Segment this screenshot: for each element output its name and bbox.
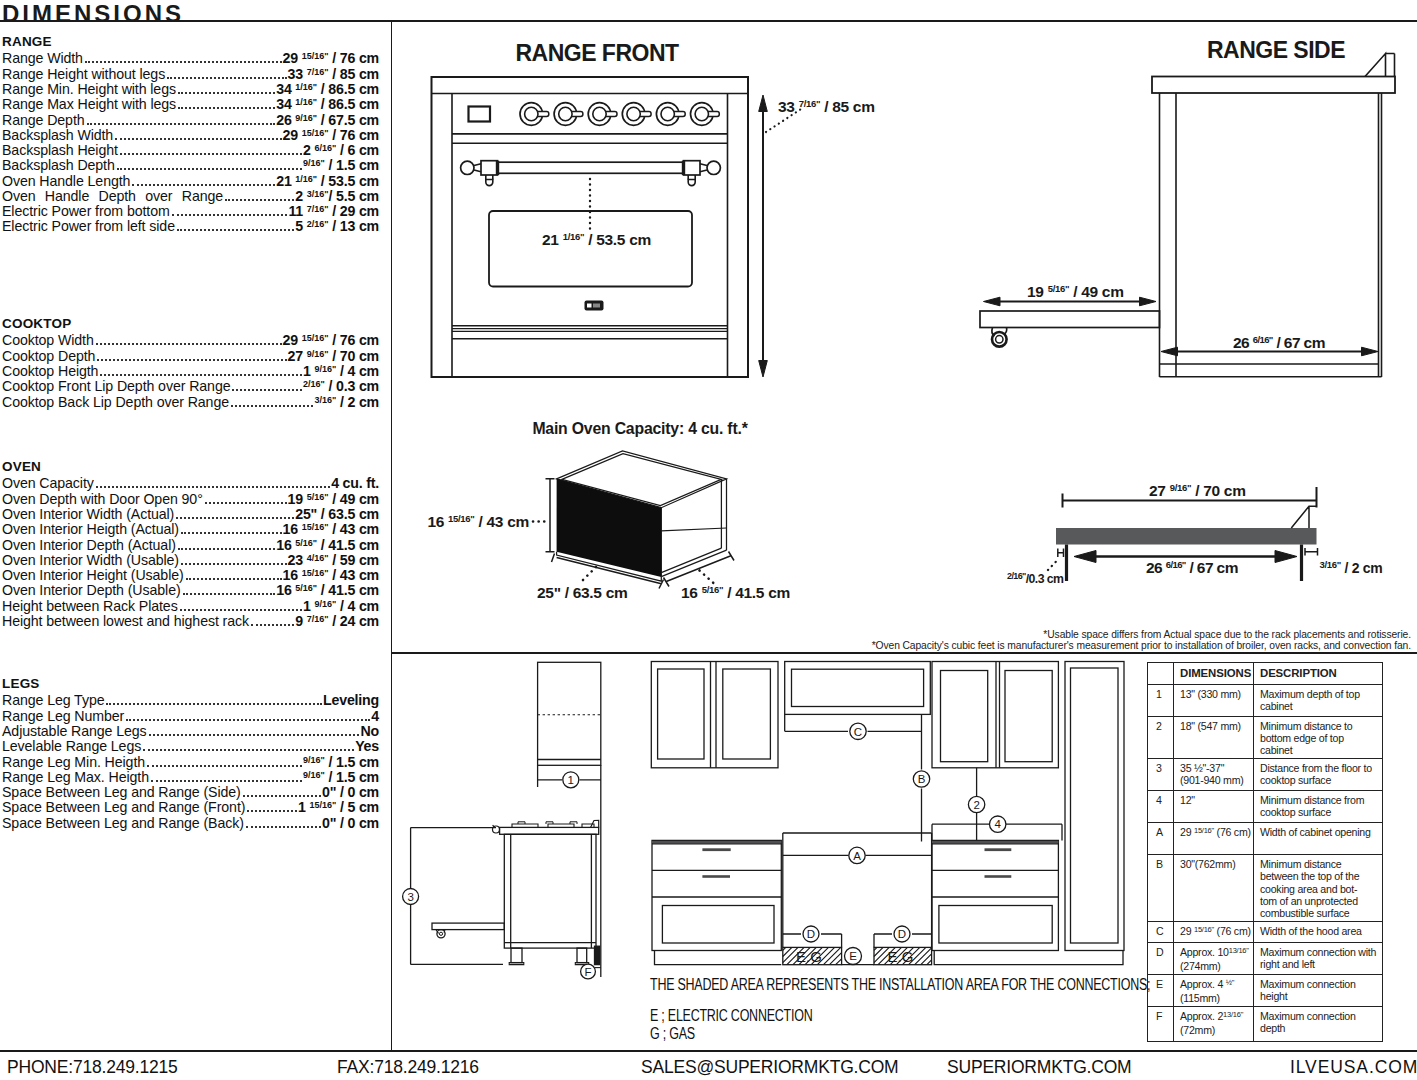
svg-text:E: E [849, 950, 857, 962]
svg-text:21 1/16" / 53.5 cm: 21 1/16" / 53.5 cm [542, 231, 651, 248]
svg-text:3/16" / 2 cm: 3/16" / 2 cm [1320, 559, 1383, 576]
svg-text:25" / 63.5 cm: 25" / 63.5 cm [537, 584, 628, 601]
svg-text:27 9/16" / 70 cm: 27 9/16" / 70 cm [1149, 482, 1246, 499]
svg-text:A: A [853, 850, 861, 862]
svg-text:1: 1 [568, 774, 574, 786]
svg-text:26 6/16" / 67 cm: 26 6/16" / 67 cm [1146, 559, 1238, 576]
svg-text:D: D [807, 928, 815, 940]
svg-text:19 5/16" / 49 cm: 19 5/16" / 49 cm [1027, 283, 1124, 300]
svg-text:4: 4 [994, 818, 1001, 830]
svg-text:C: C [854, 726, 862, 738]
svg-text:D: D [898, 928, 906, 940]
svg-text:RANGE SIDE: RANGE SIDE [1207, 37, 1345, 63]
svg-text:16 15/16" / 43 cm: 16 15/16" / 43 cm [427, 513, 529, 530]
svg-text:F: F [584, 966, 591, 978]
svg-text:RANGE FRONT: RANGE FRONT [515, 40, 679, 66]
svg-text:E.G: E.G [888, 948, 914, 965]
svg-text:16 5/16" / 41.5 cm: 16 5/16" / 41.5 cm [681, 584, 790, 601]
svg-text:2/16"/0.3 cm: 2/16"/0.3 cm [1007, 571, 1064, 587]
svg-text:3: 3 [407, 891, 413, 903]
svg-text:Main Oven Capacity: 4 cu. ft.*: Main Oven Capacity: 4 cu. ft.* [532, 420, 748, 437]
svg-text:2: 2 [973, 799, 979, 811]
svg-text:E.G: E.G [796, 948, 822, 965]
svg-text:33 7/16" / 85 cm: 33 7/16" / 85 cm [778, 98, 875, 115]
svg-text:B: B [918, 773, 926, 785]
svg-text:26 6/16" / 67 cm: 26 6/16" / 67 cm [1233, 334, 1325, 351]
